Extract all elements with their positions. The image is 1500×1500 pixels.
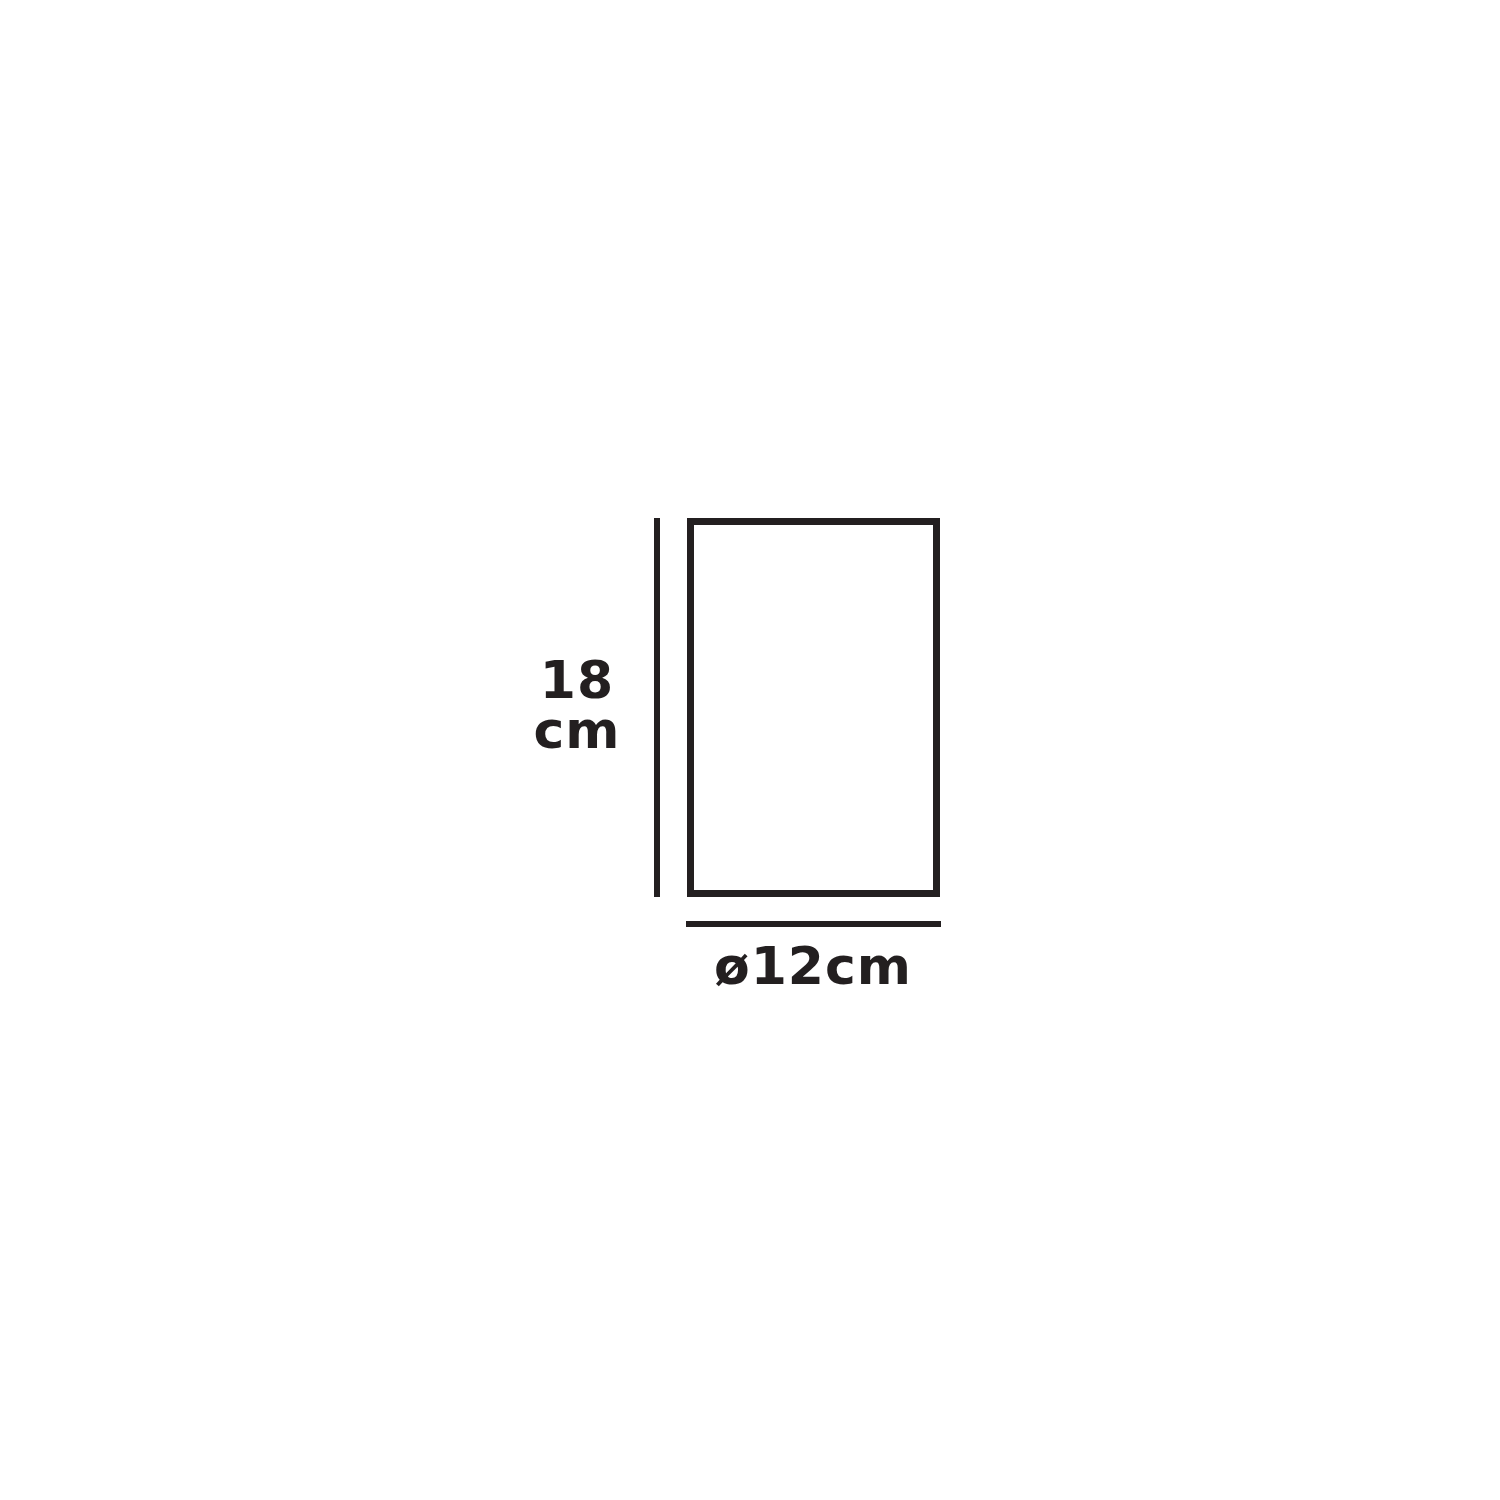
height-dimension-line bbox=[654, 518, 660, 897]
height-unit-label: cm bbox=[512, 705, 642, 755]
height-label: 18 cm bbox=[512, 655, 642, 755]
diameter-label: ø12cm bbox=[663, 938, 963, 994]
product-outline-rectangle bbox=[687, 518, 940, 897]
dimension-diagram: 18 cm ø12cm bbox=[0, 0, 1500, 1500]
diameter-dimension-line bbox=[686, 921, 941, 927]
height-value-label: 18 bbox=[512, 655, 642, 705]
